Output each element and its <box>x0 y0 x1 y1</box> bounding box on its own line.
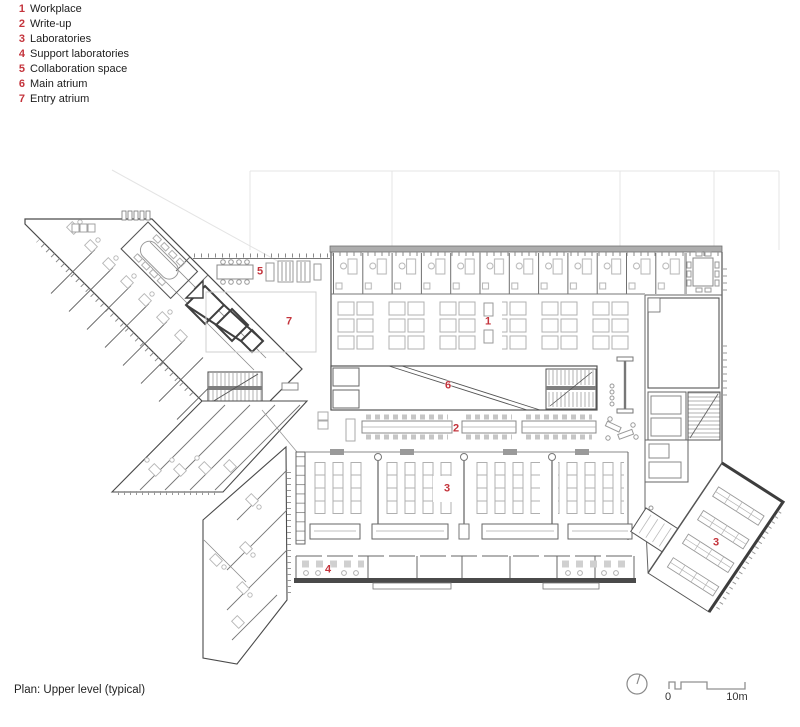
atrium-counter <box>610 357 633 413</box>
legend-item: 3Laboratories <box>16 32 129 47</box>
legend-label: Write-up <box>30 17 71 32</box>
legend-label: Main atrium <box>30 77 87 92</box>
legend-item: 5Collaboration space <box>16 62 129 77</box>
legend-number: 2 <box>16 17 25 32</box>
plan-caption: Plan: Upper level (typical) <box>14 684 145 696</box>
breakout-furniture <box>605 417 638 440</box>
legend-label: Collaboration space <box>30 62 127 77</box>
legend-number: 3 <box>16 32 25 47</box>
writeup-office-row <box>333 253 685 294</box>
floor-plan-drawing <box>0 0 800 727</box>
architectural-plan-page: 1Workplace 2Write-up 3Laboratories 4Supp… <box>0 0 800 727</box>
legend-label: Entry atrium <box>30 92 89 107</box>
plan-label-collaboration-space: 5 <box>257 267 263 278</box>
legend-label: Support laboratories <box>30 47 129 62</box>
legend-number: 4 <box>16 47 25 62</box>
north-arrow-icon <box>627 674 647 694</box>
scale-bar <box>669 682 745 689</box>
plan-label-write-up: 2 <box>453 424 459 435</box>
right-stair <box>688 392 720 440</box>
legend: 1Workplace 2Write-up 3Laboratories 4Supp… <box>16 2 129 107</box>
legend-label: Laboratories <box>30 32 91 47</box>
scale-start-label: 0 <box>665 691 671 703</box>
laboratory-hall <box>296 449 632 544</box>
legend-number: 1 <box>16 2 25 17</box>
corner-meeting-room <box>687 252 719 292</box>
plan-label-entry-atrium: 7 <box>286 317 292 328</box>
plan-label-laboratories: 3 <box>444 484 450 495</box>
top-cabinets <box>72 224 95 232</box>
angled-lab-wing <box>631 463 783 612</box>
legend-label: Workplace <box>30 2 82 17</box>
left-diagonal-wing <box>25 205 330 664</box>
main-atrium <box>331 366 597 410</box>
plan-label-workplace: 1 <box>485 317 491 328</box>
legend-item: 6Main atrium <box>16 77 129 92</box>
legend-item: 7Entry atrium <box>16 92 129 107</box>
legend-item: 2Write-up <box>16 17 129 32</box>
plan-label-main-atrium: 6 <box>445 381 451 392</box>
legend-number: 5 <box>16 62 25 77</box>
legend-number: 6 <box>16 77 25 92</box>
support-laboratories <box>294 556 636 589</box>
legend-number: 7 <box>16 92 25 107</box>
writeup-tables <box>318 412 638 441</box>
plan-label-support-laboratories: 4 <box>325 565 331 576</box>
legend-item: 1Workplace <box>16 2 129 17</box>
legend-item: 4Support laboratories <box>16 47 129 62</box>
scale-end-label: 10m <box>726 691 747 703</box>
soft-seating <box>266 261 321 282</box>
plan-label-laboratories-right: 3 <box>713 538 719 549</box>
